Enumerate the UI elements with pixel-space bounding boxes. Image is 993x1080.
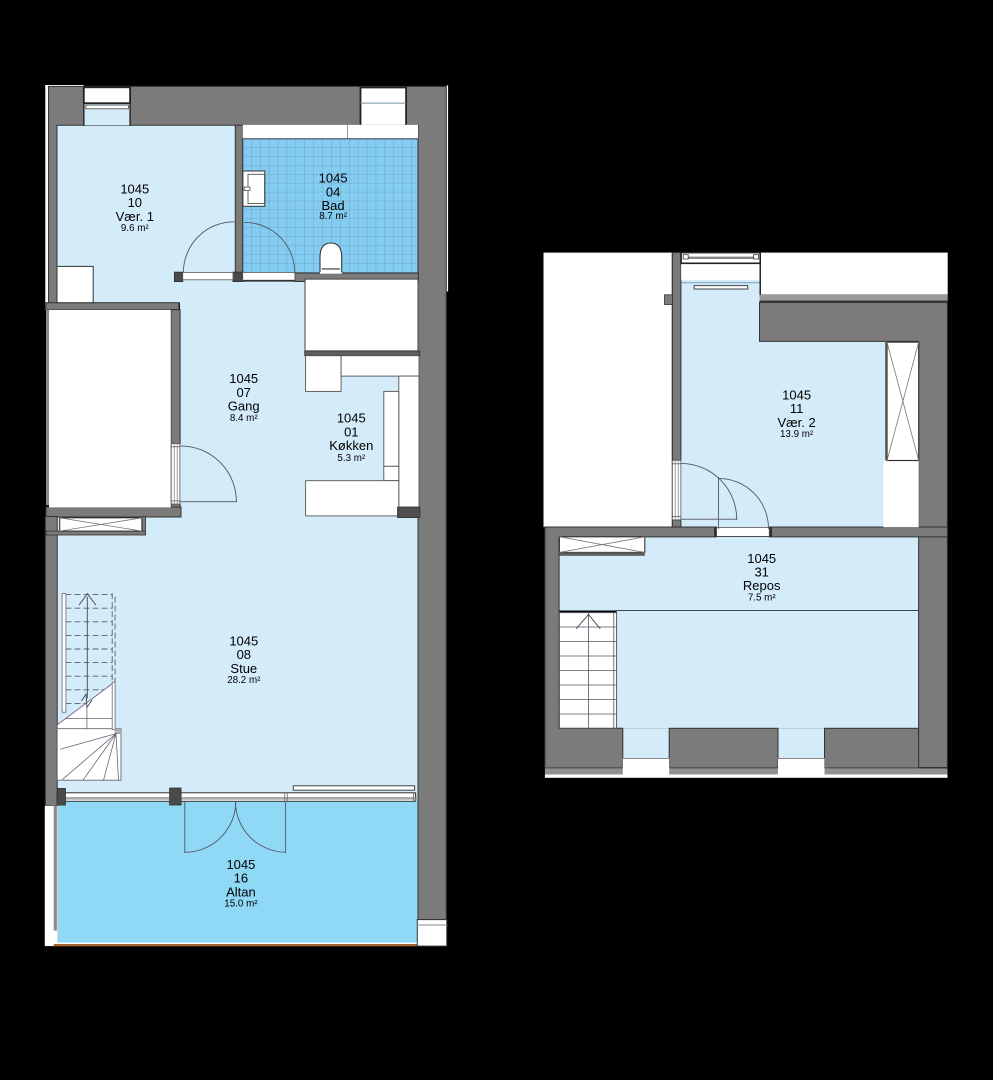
svg-text:Repos: Repos	[743, 578, 781, 593]
svg-text:Stue: Stue	[230, 661, 257, 676]
svg-text:9.6 m²: 9.6 m²	[121, 223, 150, 234]
svg-text:13.9 m²: 13.9 m²	[780, 429, 814, 440]
svg-text:7.5 m²: 7.5 m²	[748, 592, 777, 603]
svg-text:5.3 m²: 5.3 m²	[337, 453, 366, 464]
svg-text:Køkken: Køkken	[329, 438, 373, 453]
svg-text:8.7 m²: 8.7 m²	[319, 211, 348, 222]
svg-text:28.2 m²: 28.2 m²	[227, 675, 261, 686]
svg-text:Gang: Gang	[228, 399, 260, 414]
svg-text:15.0 m²: 15.0 m²	[224, 899, 258, 910]
svg-text:Altan: Altan	[226, 884, 256, 899]
svg-text:Vær. 1: Vær. 1	[116, 209, 154, 224]
svg-text:Vær. 2: Vær. 2	[777, 415, 815, 430]
svg-text:8.4 m²: 8.4 m²	[230, 413, 259, 424]
